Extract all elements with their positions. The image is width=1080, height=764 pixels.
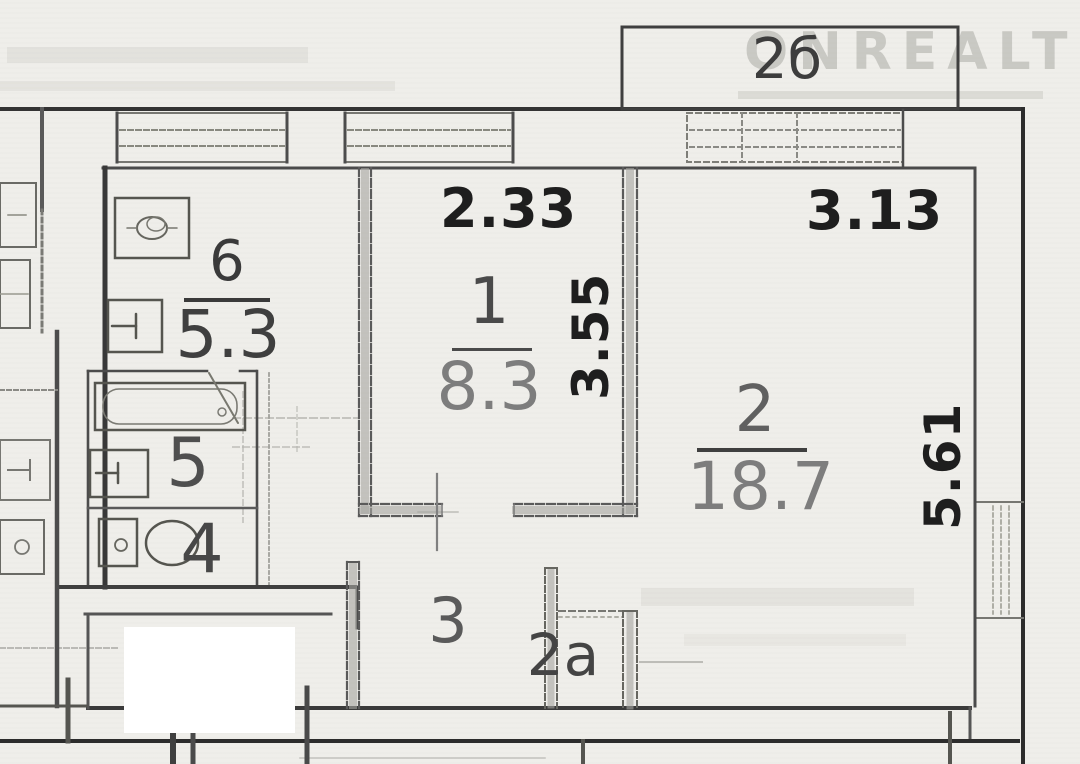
room1-area: 8.3 <box>434 354 544 420</box>
room1-depth-dimension: 3.55 <box>566 273 616 400</box>
bathroom-number: 5 <box>158 430 218 498</box>
floor-plan: ONREALT <box>0 0 1080 764</box>
kitchen-number: 6 <box>177 234 277 290</box>
white-redaction-box <box>124 627 295 733</box>
sink-icon <box>108 300 162 352</box>
room2-depth-dimension: 5.61 <box>918 403 968 530</box>
hallway-number: 3 <box>418 590 478 652</box>
room2-area: 18.7 <box>687 454 819 520</box>
room2-side-window <box>977 502 1023 618</box>
kitchen-area: 5.3 <box>172 302 284 368</box>
room2-number: 2 <box>705 378 805 442</box>
room1-window <box>345 113 513 162</box>
balcony-window-unit <box>687 110 903 168</box>
closet-number: 2а <box>518 626 608 684</box>
room1-number: 1 <box>439 270 539 334</box>
balcony-label: 2б <box>742 32 832 88</box>
room2-width-dimension: 3.13 <box>806 184 943 238</box>
wc-number: 4 <box>172 516 232 584</box>
bathtub-icon <box>95 383 245 430</box>
kitchen-window <box>117 113 287 162</box>
washbasin-icon <box>90 450 148 497</box>
room1-width-dimension: 2.33 <box>440 182 577 236</box>
